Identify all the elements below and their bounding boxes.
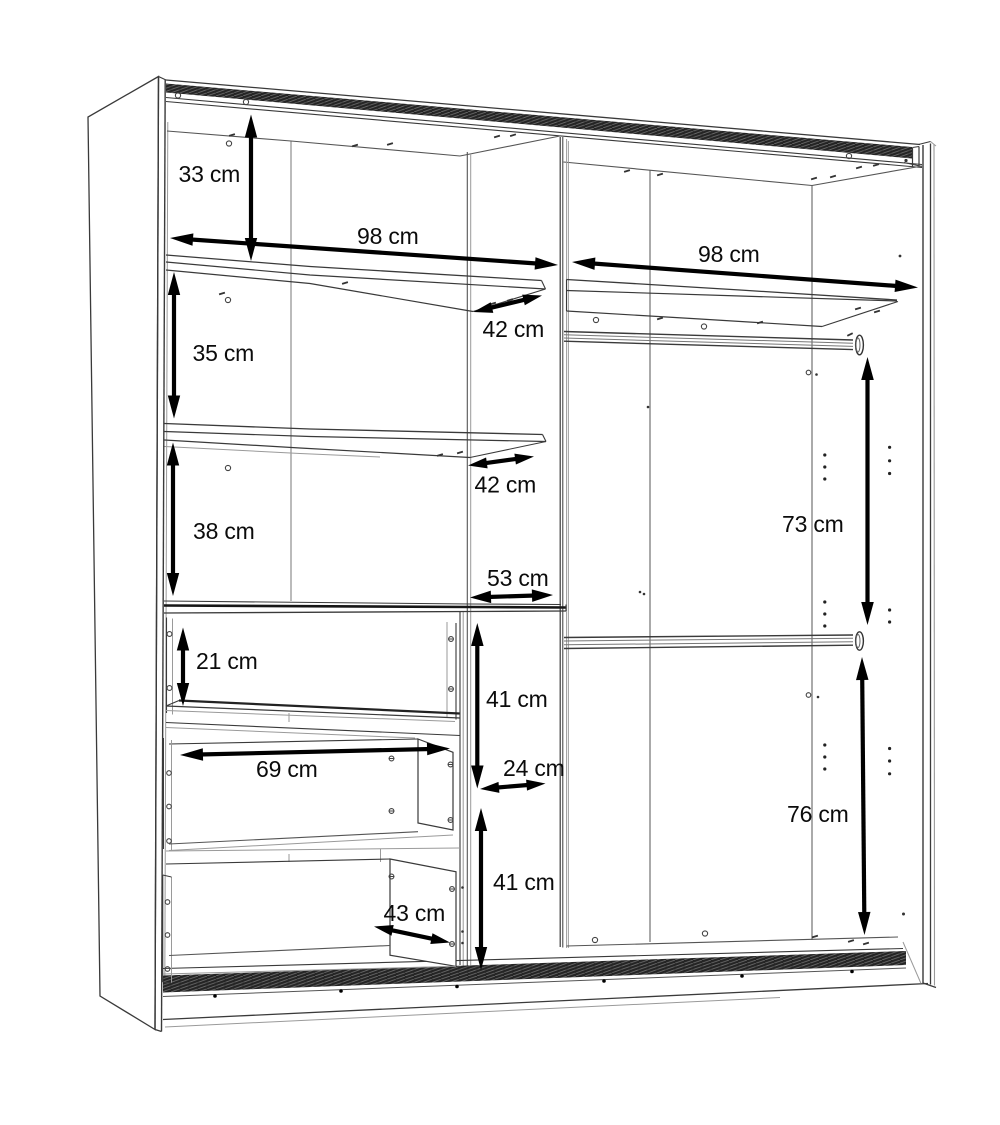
- svg-text:35 cm: 35 cm: [193, 340, 255, 366]
- svg-text:98 cm: 98 cm: [698, 241, 760, 267]
- svg-text:41 cm: 41 cm: [486, 686, 548, 712]
- svg-text:69 cm: 69 cm: [256, 756, 318, 782]
- svg-text:42 cm: 42 cm: [483, 316, 545, 342]
- svg-text:21 cm: 21 cm: [196, 648, 258, 674]
- svg-text:41 cm: 41 cm: [493, 869, 555, 895]
- svg-text:98 cm: 98 cm: [357, 223, 419, 249]
- svg-text:73 cm: 73 cm: [782, 511, 844, 537]
- svg-text:43 cm: 43 cm: [384, 900, 446, 926]
- svg-text:38 cm: 38 cm: [193, 518, 255, 544]
- svg-text:53 cm: 53 cm: [487, 565, 549, 591]
- svg-text:24 cm: 24 cm: [503, 755, 565, 781]
- svg-text:42 cm: 42 cm: [475, 472, 537, 498]
- svg-text:33 cm: 33 cm: [179, 161, 241, 187]
- svg-text:76 cm: 76 cm: [787, 801, 849, 827]
